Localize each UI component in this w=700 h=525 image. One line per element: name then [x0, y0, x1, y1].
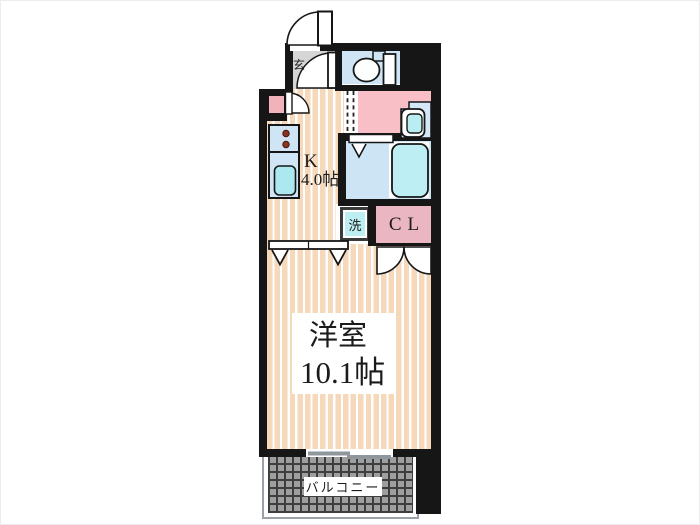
- entrance-label: 玄: [293, 56, 305, 73]
- kitchen-label: K 4.0帖: [301, 153, 339, 189]
- stove-burner-icon: [283, 130, 289, 136]
- toilet-bowl-icon: [354, 59, 380, 82]
- floorplan-image: 玄 K 4.0帖 洗 CL 洋室 10.1帖 バルコニー: [0, 0, 700, 525]
- kitchen-size: 4.0帖: [301, 171, 339, 189]
- entrance-door-leaf-icon: [318, 12, 332, 46]
- kitchen-sink-icon: [275, 166, 296, 195]
- bath-door-fold-icon: [352, 144, 366, 157]
- vanity-bowl-inner-icon: [407, 114, 422, 133]
- toilet-tank-icon: [384, 54, 396, 85]
- bath-door-icon: [349, 135, 393, 143]
- partition-fold-icon: [330, 250, 346, 265]
- hall-door-leaf-icon: [328, 53, 336, 89]
- kitchen-name: K: [301, 153, 339, 171]
- entrance-door-swing-icon: [287, 12, 320, 45]
- western-room-name: 洋室: [300, 318, 394, 354]
- stove-burner-icon: [283, 141, 289, 147]
- closet-door-left-icon: [377, 247, 404, 274]
- closet-door-right-icon: [404, 247, 431, 274]
- western-room-label: 洋室 10.1帖: [292, 313, 394, 394]
- utility-door-leaf-icon: [286, 92, 293, 114]
- partition-fold-icon: [272, 250, 288, 265]
- fixtures-layer: [1, 1, 700, 525]
- western-room-size: 10.1帖: [300, 354, 394, 392]
- bathtub-icon: [392, 144, 428, 197]
- sliding-window-icon: [347, 455, 391, 459]
- laundry-label: 洗: [340, 207, 370, 241]
- balcony-label: バルコニー: [304, 477, 382, 496]
- closet-label: CL: [376, 206, 432, 243]
- sliding-window-icon: [308, 452, 350, 456]
